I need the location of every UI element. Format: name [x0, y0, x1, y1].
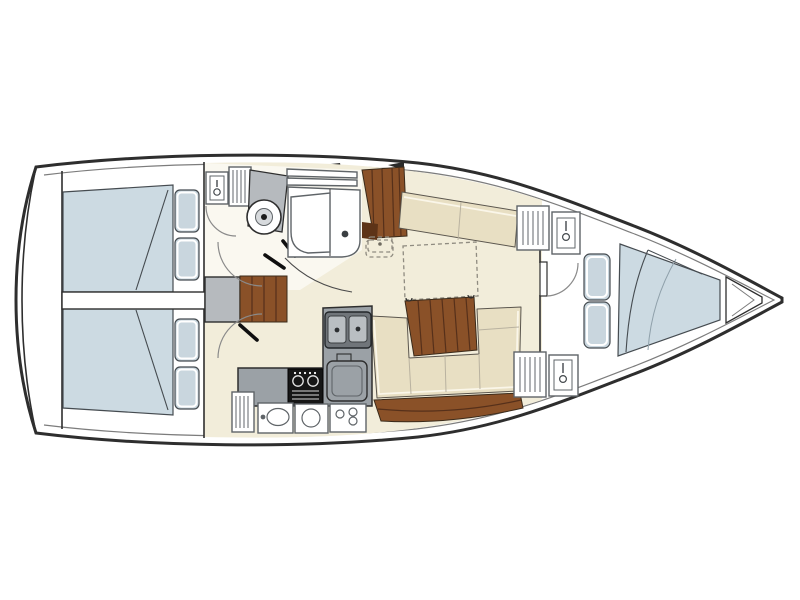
pillow [175, 190, 199, 232]
basin-glyph [267, 409, 289, 426]
round-basin-glyph [302, 409, 320, 427]
pillow [584, 302, 610, 348]
shower-stall [288, 187, 360, 257]
stove [288, 369, 323, 405]
shower-drain [342, 231, 349, 238]
knob-glyph [336, 410, 344, 418]
aft-cabin-top [63, 185, 199, 292]
floorplan-svg [0, 0, 800, 600]
pillow [175, 367, 199, 409]
engine-space [62, 292, 205, 309]
pillow [175, 238, 199, 280]
hanging-locker-top [517, 206, 549, 250]
aft-berth-top [63, 185, 173, 292]
vanity-cabinet [206, 172, 228, 204]
cabinet-top [552, 212, 580, 254]
hanging-locker-bottom [514, 352, 546, 397]
head-locker [229, 167, 251, 206]
galley-outboard-panels [258, 403, 366, 433]
knob-glyph [349, 417, 357, 425]
boat-floorplan-canvas [0, 0, 800, 600]
galley-locker [232, 392, 254, 432]
knob-glyph [349, 408, 357, 416]
step-landing [205, 277, 240, 322]
saloon-table [405, 295, 477, 356]
double-sink [325, 312, 371, 348]
cabinet-bottom [549, 355, 578, 396]
toilet [247, 200, 281, 234]
pillow [584, 254, 610, 300]
pillow [175, 319, 199, 361]
fridge [327, 354, 367, 401]
aft-berth-bottom [63, 308, 173, 415]
shower-seat [291, 193, 330, 253]
